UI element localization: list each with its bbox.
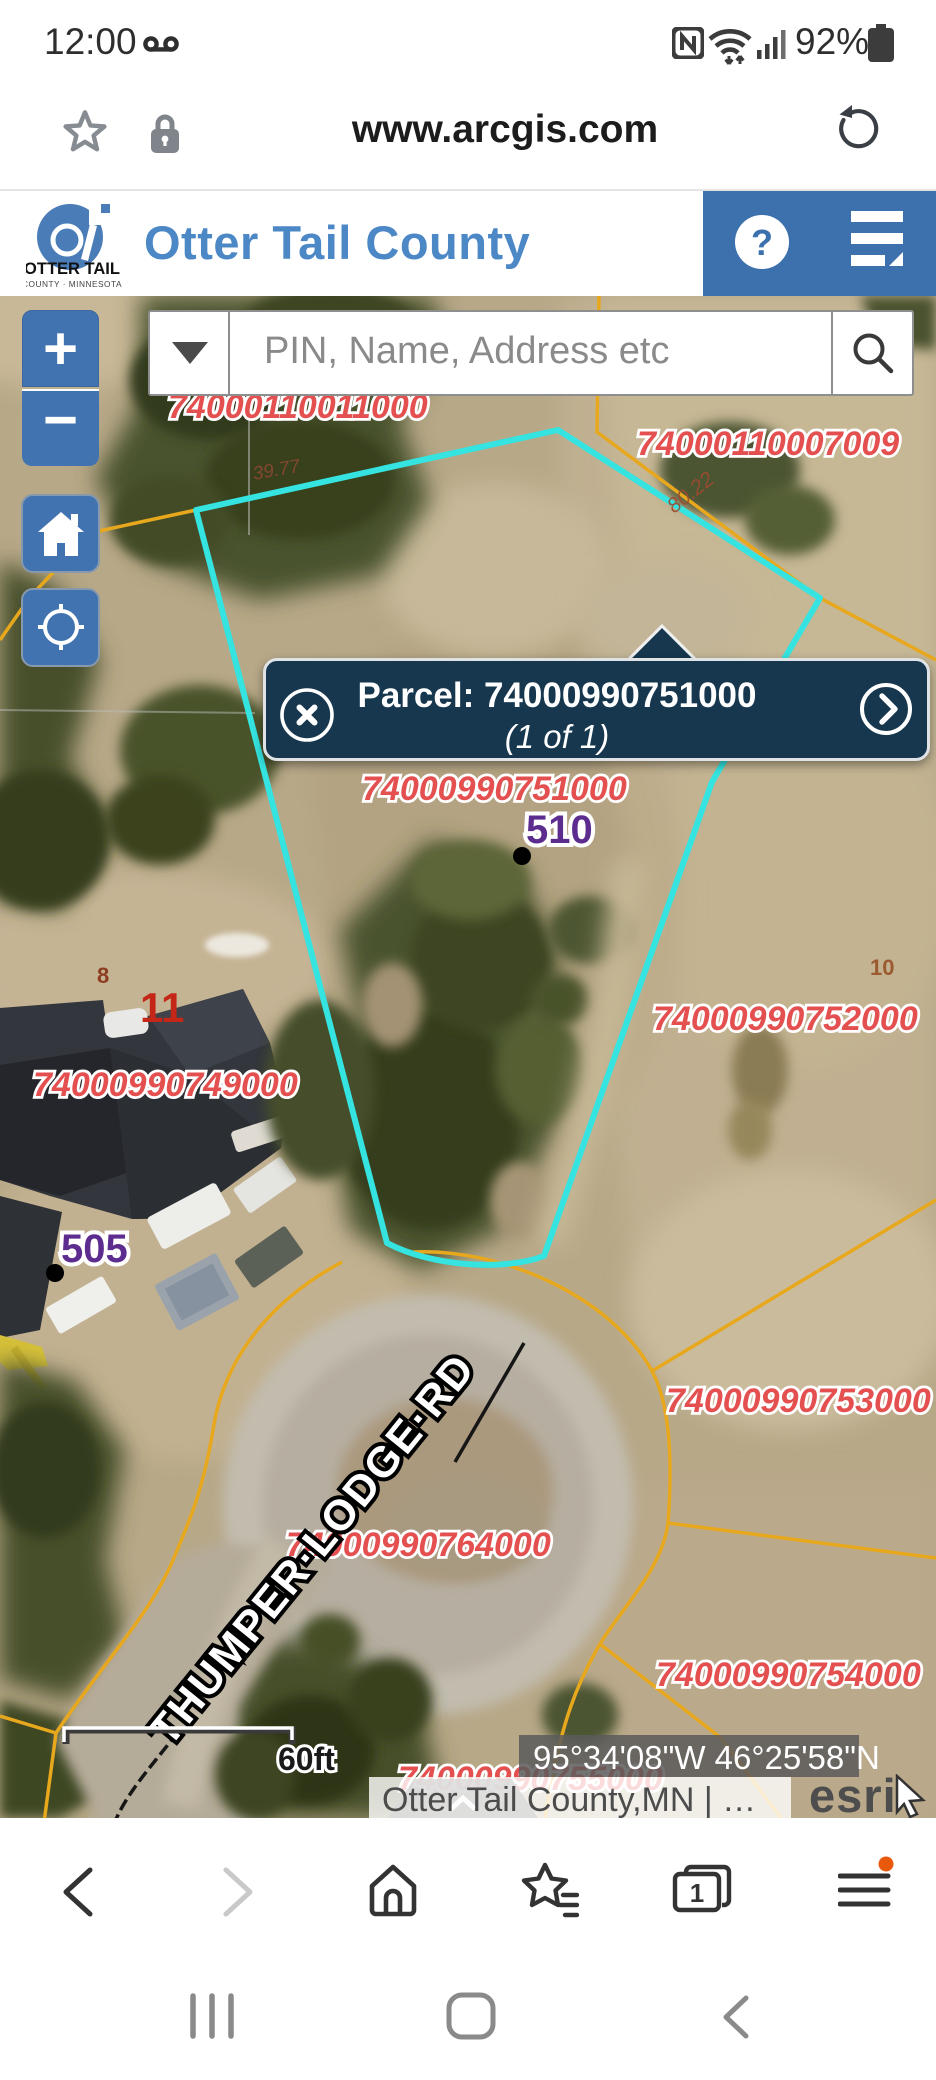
svg-text:74000990754000: 74000990754000: [656, 1656, 921, 1694]
svg-text:74000990751000: 74000990751000: [362, 770, 627, 808]
svg-text:74000990749000: 74000990749000: [33, 1066, 298, 1104]
svg-text:74000110007009: 74000110007009: [637, 425, 899, 463]
svg-text:10: 10: [870, 955, 894, 980]
svg-text:510: 510: [526, 808, 593, 852]
svg-text:11: 11: [140, 984, 184, 1031]
svg-text:74000990752000: 74000990752000: [653, 1000, 918, 1038]
svg-text:505: 505: [61, 1227, 128, 1271]
svg-text:1: 1: [690, 1878, 704, 1908]
svg-text:8: 8: [97, 963, 109, 988]
svg-text:COUNTY · MINNESOTA: COUNTY · MINNESOTA: [26, 279, 122, 289]
svg-text:74000990753000: 74000990753000: [666, 1382, 931, 1420]
svg-text:OTTER TAIL: OTTER TAIL: [26, 260, 120, 278]
svg-text:60ft: 60ft: [278, 1741, 335, 1777]
